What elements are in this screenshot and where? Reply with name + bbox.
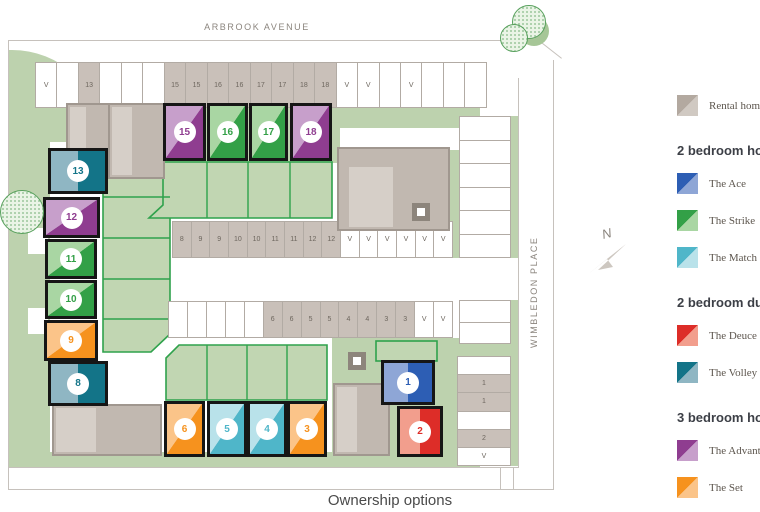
garden-left-strip — [103, 152, 170, 352]
plot-15[interactable]: 15 — [163, 103, 206, 161]
legend: Rental homes 2 bedroom homesThe AceThe S… — [677, 95, 760, 512]
legend-label: The Set — [709, 482, 743, 494]
parking-stall: 3 — [377, 302, 396, 337]
compass-arrow-icon — [585, 238, 631, 280]
plot-number: 3 — [296, 418, 318, 440]
parking-stall — [100, 63, 121, 107]
advantage-swatch — [677, 440, 698, 461]
parking-stall — [465, 63, 485, 107]
plot-3[interactable]: 3 — [287, 401, 327, 457]
parking-stall — [380, 63, 401, 107]
deuce-swatch — [677, 325, 698, 346]
plot-number: 8 — [67, 373, 89, 395]
legend-item-strike: The Strike — [677, 210, 760, 231]
parking-stall: 10 — [248, 222, 267, 257]
parking-stall — [460, 323, 510, 344]
plot-2[interactable]: 2 — [397, 406, 443, 457]
building-panel — [349, 167, 393, 227]
parking-stall: 11 — [266, 222, 285, 257]
plot-18[interactable]: 18 — [290, 103, 332, 161]
legend-label: The Strike — [709, 215, 755, 227]
parking-stall — [226, 302, 245, 337]
plot-9[interactable]: 9 — [44, 320, 98, 361]
parking-stall: 4 — [358, 302, 377, 337]
parking-stall: 17 — [251, 63, 272, 107]
building-panel — [337, 387, 357, 452]
building-panel — [112, 107, 132, 175]
legend-label: Rental homes — [709, 100, 760, 112]
road-bottom — [8, 467, 553, 483]
parking-stall: 12 — [304, 222, 323, 257]
parking-stall: 15 — [186, 63, 207, 107]
parking-row-right-upper — [459, 116, 511, 258]
plot-5[interactable]: 5 — [207, 401, 247, 457]
parking-stall: V — [36, 63, 57, 107]
ace-swatch — [677, 173, 698, 194]
plot-12[interactable]: 12 — [43, 197, 100, 238]
legend-label: The Ace — [709, 178, 746, 190]
street-label-wimbledon: WIMBLEDON PLACE — [529, 228, 539, 348]
parking-stall: 2 — [458, 430, 510, 448]
plot-number: 2 — [409, 421, 431, 443]
parking-stall: 3 — [396, 302, 415, 337]
parking-stall: 8 — [173, 222, 192, 257]
plot-6[interactable]: 6 — [164, 401, 205, 457]
parking-stall: 9 — [210, 222, 229, 257]
rental-building-1b — [108, 103, 165, 179]
plot-17[interactable]: 17 — [249, 103, 288, 161]
parking-stall: 10 — [229, 222, 248, 257]
parking-stall: V — [401, 63, 422, 107]
parking-stall: V — [415, 302, 434, 337]
set-swatch — [677, 477, 698, 498]
strike-swatch — [677, 210, 698, 231]
parking-stall — [460, 117, 510, 141]
volley-swatch — [677, 362, 698, 383]
plot-8[interactable]: 8 — [48, 361, 108, 406]
tree-top-right-2 — [500, 24, 528, 52]
parking-stall: 5 — [321, 302, 340, 337]
plot-11[interactable]: 11 — [45, 239, 97, 279]
rental-building-2 — [337, 147, 450, 231]
parking-stall: 16 — [208, 63, 229, 107]
plot-13[interactable]: 13 — [48, 148, 108, 194]
match-swatch — [677, 247, 698, 268]
plot-number: 18 — [300, 121, 322, 143]
plot-16[interactable]: 16 — [207, 103, 248, 161]
legend-item-deuce: The Deuce — [677, 325, 760, 346]
green-sliver-2 — [511, 116, 518, 344]
parking-row-mid-lower: 66554433VV — [168, 301, 453, 338]
tree-left — [0, 190, 44, 234]
legend-label: The Volley — [709, 367, 757, 379]
parking-stall: V — [337, 63, 358, 107]
parking-stall — [460, 188, 510, 212]
plot-number: 12 — [61, 207, 83, 229]
parking-stall: 13 — [79, 63, 100, 107]
plot-number: 6 — [174, 418, 196, 440]
legend-sections: 2 bedroom homesThe AceThe StrikeThe Matc… — [677, 143, 760, 498]
legend-item-rental: Rental homes — [677, 95, 760, 116]
parking-stall: 18 — [315, 63, 336, 107]
driveway-line-2 — [513, 467, 514, 490]
rental-building-1a — [66, 103, 111, 152]
parking-stall — [444, 63, 465, 107]
legend-item-advantage: The Advantage — [677, 440, 760, 461]
parking-stall: 11 — [285, 222, 304, 257]
parking-row-right-mid — [459, 300, 511, 344]
parking-stall — [207, 302, 226, 337]
road-aisle-connector — [453, 258, 518, 300]
boundary-top — [8, 40, 538, 41]
plot-number: 16 — [217, 121, 239, 143]
parking-stall — [460, 301, 510, 323]
parking-stall — [57, 63, 78, 107]
parking-stall — [460, 235, 510, 258]
parking-stall: 1 — [458, 393, 510, 411]
parking-stall — [460, 141, 510, 165]
legend-item-ace: The Ace — [677, 173, 760, 194]
plot-number: 1 — [397, 372, 419, 394]
boundary-left — [8, 40, 9, 490]
parking-stall: 15 — [165, 63, 186, 107]
parking-stall — [169, 302, 188, 337]
parking-row-right-lower: 112V — [457, 356, 511, 466]
legend-label: The Match — [709, 252, 757, 264]
parking-stall — [422, 63, 443, 107]
garden-top-strip — [149, 162, 332, 218]
parking-stall — [245, 302, 264, 337]
driveway-line-1 — [500, 467, 501, 490]
parking-stall: 6 — [283, 302, 302, 337]
road-right-inner-line — [518, 78, 519, 467]
parking-stall: 17 — [272, 63, 293, 107]
plot-number: 15 — [174, 121, 196, 143]
parking-stall: 4 — [339, 302, 358, 337]
parking-stall: 1 — [458, 375, 510, 393]
parking-stall — [458, 412, 510, 430]
legend-item-set: The Set — [677, 477, 760, 498]
legend-label: The Deuce — [709, 330, 757, 342]
boundary-bottom-inner — [8, 467, 519, 468]
garden-bottom-strip — [166, 345, 327, 400]
plot-1[interactable]: 1 — [381, 360, 435, 405]
plot-number: 10 — [60, 289, 82, 311]
plot-number: 17 — [258, 121, 280, 143]
plot-number: 4 — [256, 418, 278, 440]
street-label-arbrook: ARBROOK AVENUE — [187, 22, 327, 32]
ownership-options-heading: Ownership options — [230, 492, 550, 509]
boundary-bottom-outer — [8, 489, 554, 490]
parking-stall: 18 — [294, 63, 315, 107]
parking-stall — [122, 63, 143, 107]
plot-number: 13 — [67, 160, 89, 182]
building-panel — [56, 408, 96, 452]
building-panel — [70, 107, 86, 148]
legend-heading: 2 bedroom homes — [677, 143, 760, 158]
legend-item-volley: The Volley — [677, 362, 760, 383]
parking-stall — [188, 302, 207, 337]
parking-stall: V — [434, 302, 452, 337]
legend-heading: 3 bedroom homes — [677, 410, 760, 425]
site-plan: V131515161617171818VVV899101011111212VVV… — [0, 0, 760, 512]
parking-stall — [460, 211, 510, 235]
parking-stall: 9 — [192, 222, 211, 257]
legend-heading: 2 bedroom duplex — [677, 295, 760, 310]
rental-swatch — [677, 95, 698, 116]
rental-building-3 — [52, 404, 162, 456]
legend-item-match: The Match — [677, 247, 760, 268]
parking-stall — [143, 63, 164, 107]
parking-row-top: V131515161617171818VVV — [35, 62, 487, 108]
plot-number: 9 — [60, 330, 82, 352]
plot-4[interactable]: 4 — [247, 401, 287, 457]
plot-number: 5 — [216, 418, 238, 440]
plot-number: 11 — [60, 248, 82, 270]
parking-stall — [458, 357, 510, 375]
utility-box-1 — [412, 203, 430, 221]
legend-label: The Advantage — [709, 445, 760, 457]
plot-10[interactable]: 10 — [45, 280, 97, 319]
parking-stall: V — [358, 63, 379, 107]
utility-box-2 — [348, 352, 366, 370]
parking-stall — [460, 164, 510, 188]
parking-stall: 6 — [264, 302, 283, 337]
parking-stall: 5 — [302, 302, 321, 337]
road-right-outer-line — [553, 60, 554, 490]
parking-stall: V — [458, 448, 510, 465]
parking-stall: 16 — [229, 63, 250, 107]
